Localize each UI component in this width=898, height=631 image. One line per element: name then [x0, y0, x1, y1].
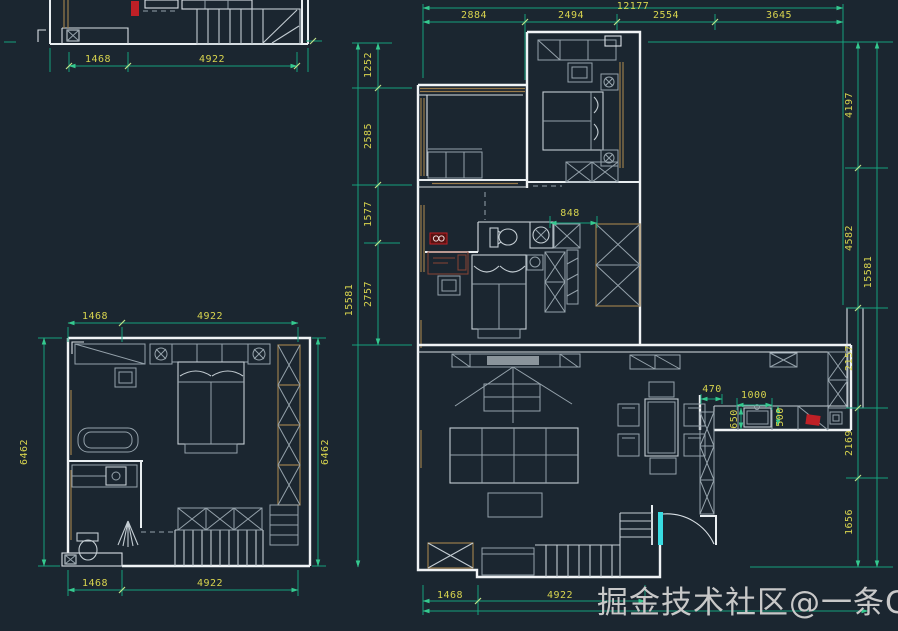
- corner-x-box: [65, 555, 76, 564]
- dim-label: 2169: [844, 430, 855, 456]
- stove-marker: [805, 414, 820, 426]
- bedroom1-wardrobe: [566, 62, 623, 182]
- dim-label: 1468: [85, 54, 111, 65]
- entry-x-box: [428, 543, 473, 568]
- bedroom2-bed: [472, 255, 526, 338]
- tv-cabinet: [452, 354, 580, 423]
- dimension-left: 6462: [19, 338, 62, 566]
- staircase: [535, 513, 652, 577]
- tv-screen: [487, 356, 539, 365]
- dim-label: 4922: [197, 311, 223, 322]
- bedroom2-nightstand: [527, 255, 543, 270]
- dimensions-top: 12177 2884 2494 2554 3645: [423, 1, 843, 305]
- dim-label: 4922: [199, 54, 225, 65]
- dim-label: 1468: [82, 311, 108, 322]
- storage-column: [700, 412, 714, 514]
- dining-set: [618, 382, 705, 474]
- dim-label: 6462: [19, 439, 30, 465]
- dim-label: 1656: [844, 509, 855, 535]
- staircase: [197, 9, 300, 44]
- watermark-text: 掘金技术社区@一条Go: [597, 585, 898, 621]
- chair: [115, 368, 136, 387]
- storage-x-cabinets: [178, 508, 262, 530]
- socket-symbol: [430, 233, 447, 244]
- dim-label: 4922: [197, 578, 223, 589]
- dim-label: 12177: [617, 1, 650, 12]
- dimension-right: 6462: [312, 338, 331, 566]
- dim-label: 2757: [363, 281, 374, 307]
- tall-wardrobe-column: [596, 224, 640, 306]
- dim-label: 4922: [547, 590, 573, 601]
- bedroom2-desk: [428, 252, 468, 274]
- bedroom1-cabinet-row: [538, 36, 621, 60]
- dim-label: 15581: [863, 256, 874, 289]
- cad-floorplan-screenshot: 1468 4922: [0, 0, 898, 631]
- fridge-cabinet: [630, 355, 680, 369]
- dimensions-right: 15581 4197 4582 2157 2169 1656: [648, 42, 893, 567]
- dim-label: 848: [560, 208, 580, 219]
- dimension-bathroom: 848: [550, 208, 597, 228]
- red-door-marker: [131, 1, 139, 16]
- wardrobe-x-cell: [554, 224, 580, 248]
- entry-door-leaf: [658, 512, 663, 545]
- dimensions-bottom: 1468 4922: [68, 570, 298, 596]
- dim-label: 1252: [363, 52, 374, 78]
- plan-lower-left: 1468 4922 1468 4922 6462 6462: [19, 311, 331, 596]
- nightstand-right: [248, 344, 270, 364]
- dim-label: 15581: [344, 284, 355, 317]
- shower-spray: [118, 521, 138, 547]
- bedroom1-bed: [543, 92, 603, 150]
- door-swing-arc: [663, 514, 714, 544]
- coffee-table: [484, 384, 540, 411]
- dim-label: 6462: [320, 439, 331, 465]
- dim-label: 2554: [653, 10, 679, 21]
- toilet: [77, 533, 98, 560]
- bedroom1-desk: [568, 63, 592, 82]
- dimensions-left: 15581 1252 2585 1577 2757: [344, 43, 412, 567]
- toilet: [490, 228, 517, 247]
- dim-label: 1468: [82, 578, 108, 589]
- wardrobe-strips: [545, 250, 578, 312]
- side-table: [488, 493, 542, 517]
- dim-label: 470: [702, 384, 722, 395]
- window-sill: [770, 353, 797, 367]
- bed: [178, 362, 244, 453]
- plan-upper-left: 1468 4922: [4, 0, 322, 72]
- bathroom-counter: [72, 465, 137, 487]
- dim-label: 4582: [844, 225, 855, 251]
- shoe-cabinet: [482, 548, 534, 575]
- dim-label: 1577: [363, 201, 374, 227]
- desk: [75, 344, 145, 364]
- dim-label: 2585: [363, 123, 374, 149]
- dim-label: 4197: [844, 92, 855, 118]
- window-sill: [145, 0, 178, 8]
- staircase: [175, 530, 263, 566]
- headboard-cabinet: [172, 344, 248, 362]
- cabinet-x-box: [67, 30, 79, 41]
- dim-label: 500: [775, 407, 786, 427]
- sofa: [450, 428, 578, 483]
- dim-label: 1000: [741, 390, 767, 401]
- floor-plan-drawing: 1468 4922: [0, 0, 898, 631]
- dim-label: 1468: [437, 590, 463, 601]
- dim-label: 2884: [461, 10, 487, 21]
- dim-label: 3645: [766, 10, 792, 21]
- wardrobe-column: [278, 345, 300, 505]
- dim-label: 2494: [558, 10, 584, 21]
- wardrobe-band: [182, 0, 252, 9]
- bench-sofa: [428, 149, 482, 178]
- dim-label: 2157: [844, 345, 855, 371]
- bedroom2-chair: [438, 276, 460, 295]
- dim-label: 650: [729, 409, 740, 429]
- plan-right: 12177 2884 2494 2554 3645 15581 1252 258…: [344, 1, 893, 615]
- nightstand-left: [150, 344, 172, 364]
- bathtub: [78, 428, 138, 452]
- shelf-column: [270, 505, 298, 545]
